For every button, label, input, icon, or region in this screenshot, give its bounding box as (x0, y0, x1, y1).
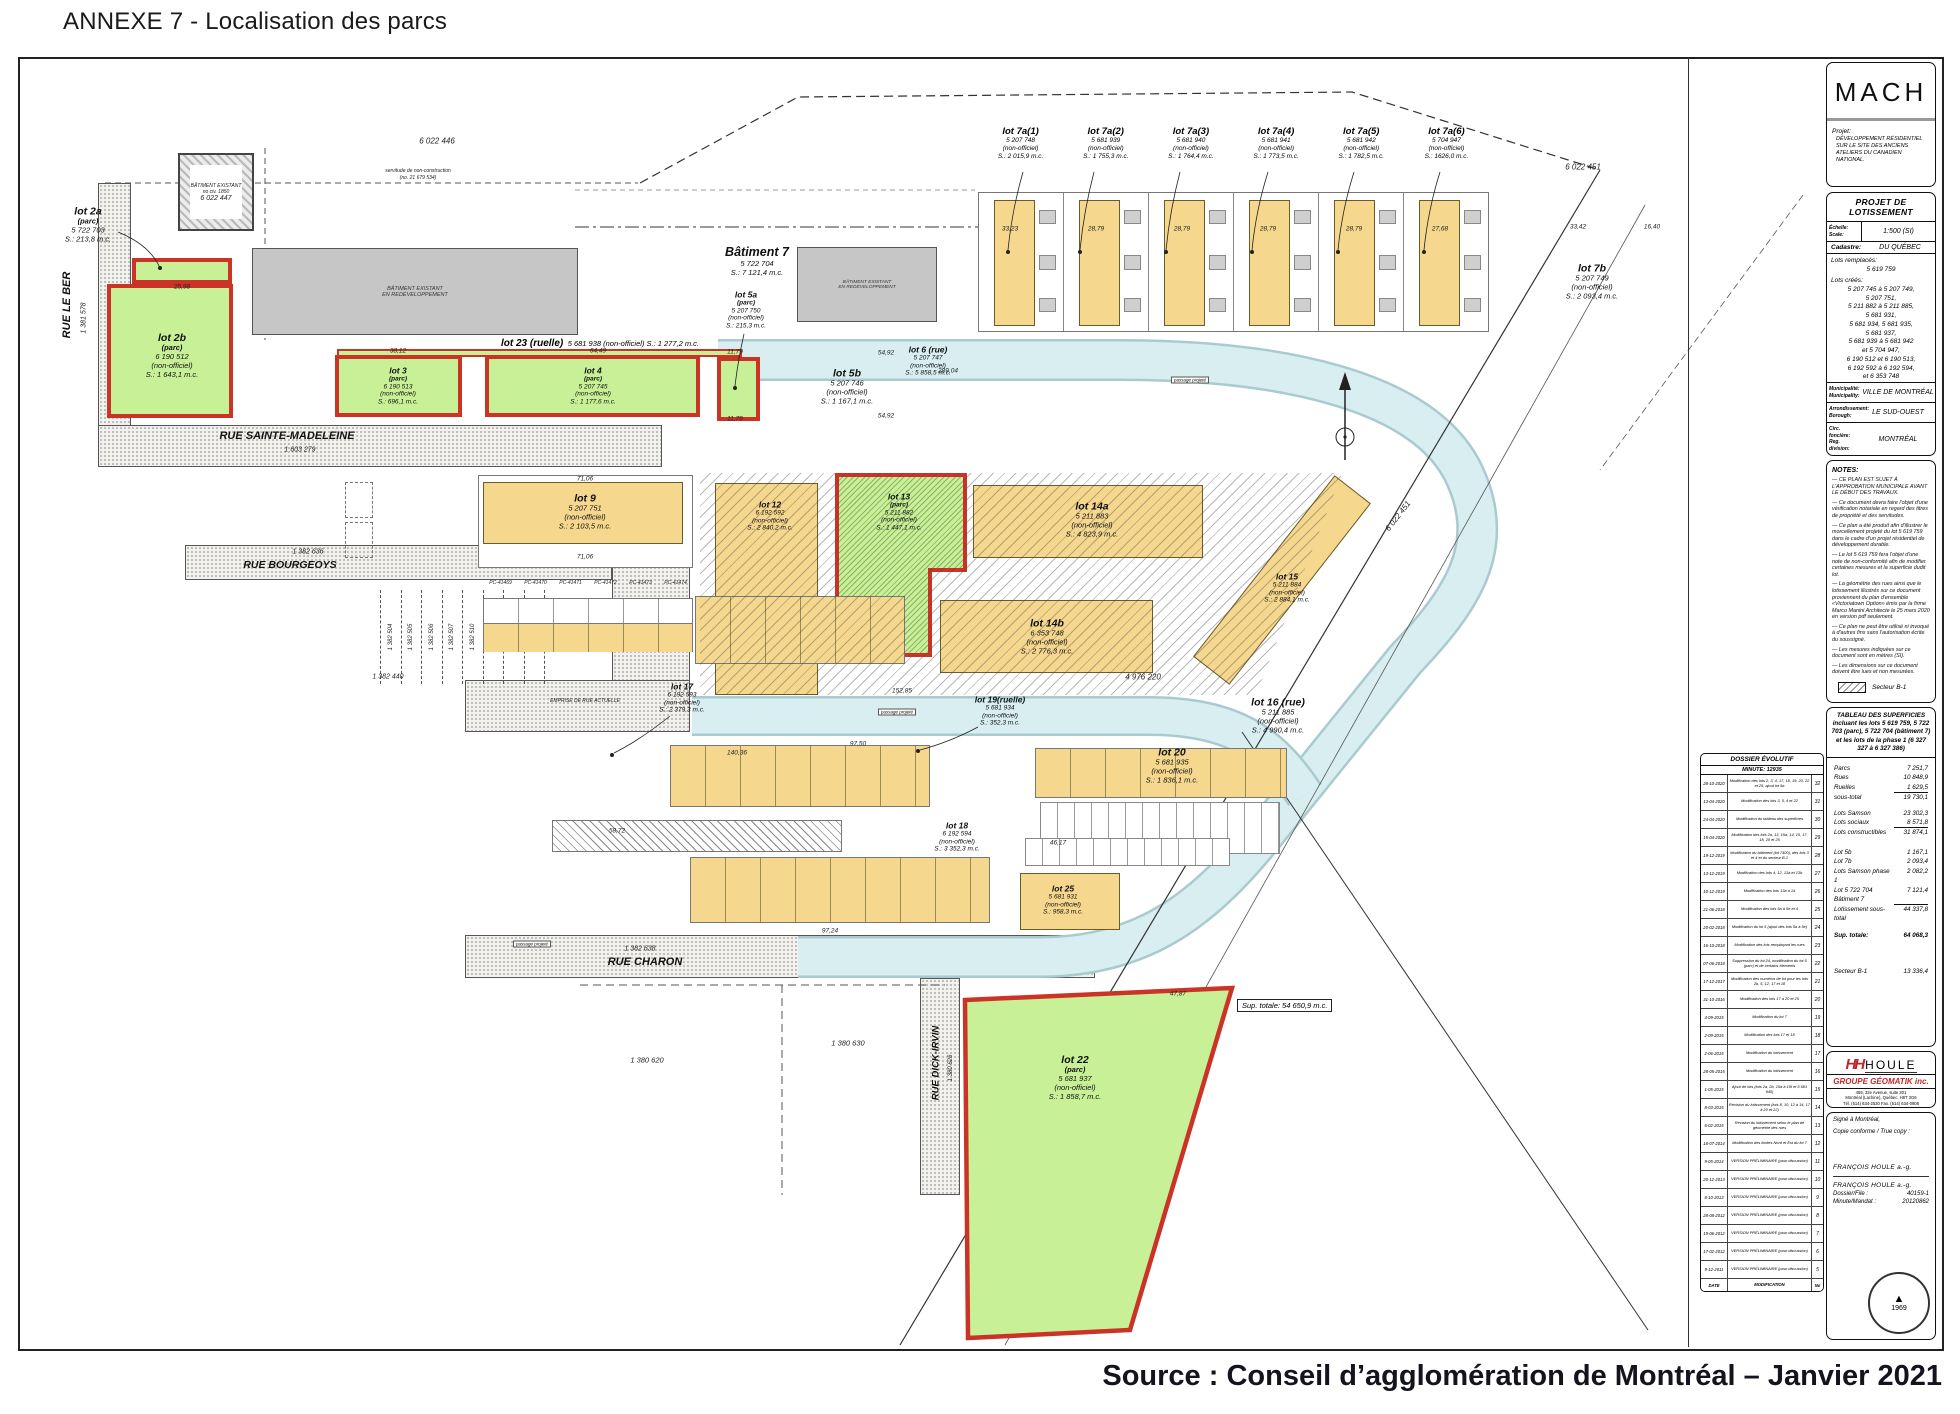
projet-label: Projet: (1832, 128, 1930, 135)
dim-label: 47,87 (1170, 991, 1186, 998)
passage-projete-1: passage projeté (1171, 377, 1209, 384)
cadastre-dick-irvin: 1 380 626 (948, 1055, 954, 1082)
lot-label-2b: lot 2b(parc) 6 190 512(non-officiel)S.: … (146, 332, 199, 380)
superficies-row: Lot 7b2 093,4 (1834, 857, 1928, 866)
dossier-row: 19-12-2019 Modification du bâtiment (lot… (1701, 847, 1823, 865)
pc-label: PC-41472 (588, 580, 623, 586)
dossier-row: 24-04-2020 Modification du tableau des s… (1701, 811, 1823, 829)
phase1-rowhouses (483, 598, 693, 652)
dossier-row: 28-05-2015 Modification du lotissement 1… (1701, 1063, 1823, 1081)
lot-label-13: lot 13(parc) 5 211 882(non-officiel)S.: … (876, 492, 922, 533)
strip-lot: 1 382 506 (421, 590, 442, 684)
dossier-row: 16-10-2018 Modification des lots remplaç… (1701, 937, 1823, 955)
cadastre-6022447: 6 022 447 (200, 195, 231, 202)
cadastre-bourgeoys: 1 382 636 (292, 549, 323, 556)
existing-building-1: BÂTIMENT EXISTANTEN REDÉVELOPPEMENT (252, 248, 578, 335)
note-item: — La géométrie des rues ainsi que le lot… (1832, 581, 1930, 621)
dim-label: 97,24 (822, 928, 838, 935)
existing-building-1850: BÂTIMENT EXISTANT no civ. 1850 6 022 447 (178, 153, 254, 231)
superficies-row: Rues10 848,9 (1834, 773, 1928, 782)
houle-logo: HH HOULE (1827, 1052, 1935, 1075)
cadastre-le-ber: 1 381 578 (81, 302, 88, 333)
lot-label-7a6: lot 7a(6)5 704 947(non-officiel)S.: 1626… (1404, 126, 1489, 161)
dim-label: 11,79 (727, 416, 743, 423)
mach-logo: MACH (1827, 63, 1935, 121)
dossier-row: 20-02-2018 Modification du lot 5 (ajout … (1701, 919, 1823, 937)
lot-label-12: lot 126 192 592 (non-officiel)S.: 2 840,… (747, 500, 793, 533)
arrondissement-value: LE SUD-OUEST (1861, 409, 1935, 416)
dim-label: 28,79 (1260, 226, 1276, 233)
dossier-row: 1-05-2015 Ajout de lots (lots 2a, 2b, 15… (1701, 1081, 1823, 1099)
signature-name-1: FRANÇOIS HOULE a.-g. (1827, 1163, 1935, 1172)
street-lot17-corridor-2 (465, 680, 690, 732)
dossier-title: DOSSIER ÉVOLUTIF (1701, 754, 1823, 766)
circonscription-value: MONTRÉAL (1861, 436, 1935, 443)
superficie-totale-box: Sup. totale: 54 650,9 m.c. (1237, 999, 1332, 1012)
dim-label: 27,68 (1432, 226, 1448, 233)
servitude-label-2: (no. 21 679 534) (400, 175, 437, 181)
lot-label-2a: lot 2a(parc) 5 722 703S.: 213,8 m.c. (65, 206, 111, 245)
passage-projete-2: passage projeté (878, 709, 916, 716)
cadastre-charon: 1 382 638 (624, 946, 655, 953)
cadastre-value: DU QUÉBEC (1865, 244, 1935, 251)
dossier-row: 2-09-2015 Modification des lots 17 et 18… (1701, 1027, 1823, 1045)
dim-label: 152,85 (892, 688, 912, 695)
dim-label: 58,72 (609, 828, 625, 835)
note-item: — CE PLAN EST SUJET À L'APPROBATION MUNI… (1832, 477, 1930, 497)
dossier-row: 2-06-2015 Modification du lotissement 17 (1701, 1045, 1823, 1063)
dim-label: 46,17 (1050, 840, 1066, 847)
panel-superficies: TABLEAU DES SUPERFICIES incluant les lot… (1826, 707, 1936, 1047)
dossier-row: 8-10-2013 VERSION PRÉLIMINAIRE (pour dis… (1701, 1189, 1823, 1207)
lot7a-labels: lot 7a(1)5 207 748(non-officiel)S.: 2 01… (978, 126, 1489, 161)
street-label-dick-irvin: RUE DICK-IRVIN (931, 1026, 942, 1100)
titleblock-divider (1688, 57, 1689, 1347)
dim-label: 71,06 (577, 554, 593, 561)
dossier-row: 9-05-2014 VERSION PRÉLIMINAIRE (pour dis… (1701, 1153, 1823, 1171)
dossier-row: 31-10-2016 Modification des lots 17 à 20… (1701, 991, 1823, 1009)
pc-label: PC-41470 (518, 580, 553, 586)
dossier-row: 17-12-2017 Modification des numéros de l… (1701, 973, 1823, 991)
panel-houle: HH HOULE GROUPE GÉOMATIK inc. 455, 32e A… (1826, 1051, 1936, 1108)
lot-label-25: lot 255 681 931 (non-officiel)S.: 958,3 … (1043, 884, 1083, 917)
superficies-row: Lot 5 722 704 Bâtiment 77 121,4 (1834, 886, 1928, 905)
rowhouses-3 (690, 857, 990, 923)
lot-label-22: lot 22(parc) 5 681 937(non-officiel)S.: … (1049, 1054, 1102, 1102)
annex-page: ANNEXE 7 - Localisation des parcs 1 382 … (0, 0, 1960, 1414)
lot-label-14a: lot 14a5 211 883 (non-officiel)S.: 4 823… (1066, 501, 1119, 540)
dossier-rows: 28-10-2020 Modification des lots 2, 3, 4… (1701, 775, 1823, 1279)
dossier-row: 6-02-2015 Révision du lotissement selon … (1701, 1117, 1823, 1135)
cadastre-1380620: 1 380 620 (630, 1056, 663, 1065)
lot-label-14b: lot 14b6 353 748 (non-officiel)S.: 2 776… (1021, 618, 1074, 657)
note-item: — Le lot 5 619 759 fera l'objet d'une no… (1832, 552, 1930, 578)
superficies-row: Secteur B-113 336,4 (1834, 967, 1928, 976)
superficies-row: Parcs7 251,7 (1834, 764, 1928, 773)
panel-lotissement: PROJET DE LOTISSEMENT Échelle:Scale: 1:5… (1826, 192, 1936, 456)
cadastre-4976220: 4 976 220 (1125, 673, 1161, 682)
pc-label: PC-41473 (623, 580, 658, 586)
lots-remplaces: 5 619 759 (1827, 266, 1935, 275)
note-item: — Les mesures indiquées sur ce document … (1832, 647, 1930, 660)
dim-label: 54,92 (878, 350, 894, 357)
scale-value: 1:500 (SI) (1862, 228, 1935, 235)
dossier-footer: DATE MODIFICATION No (1701, 1279, 1823, 1291)
dossier-row: 28-08-2012 VERSION PRÉLIMINAIRE (pour di… (1701, 1207, 1823, 1225)
small-lot-box (345, 482, 373, 518)
superficies-row: Ruelles1 629,5 (1834, 783, 1928, 793)
lot-label-batiment7: Bâtiment 75 722 704S.: 7 121,4 m.c. (725, 245, 789, 277)
lots-crees: 5 207 745 à 5 207 749,5 207 751,5 211 88… (1827, 286, 1935, 382)
lotissement-title: PROJET DE LOTISSEMENT (1827, 193, 1935, 222)
panel-notes: NOTES: — CE PLAN EST SUJET À L'APPROBATI… (1826, 460, 1936, 703)
strip-lot: 1 382 504 (380, 590, 401, 684)
superficies-row: Lots sociaux8 571,8 (1834, 818, 1928, 828)
existing-building-2: BÂTIMENT EXISTANTEN REDÉVELOPPEMENT (797, 247, 937, 322)
street-sainte-madeleine (98, 425, 662, 467)
superficies-row: sous-total19 730,1 (1834, 793, 1928, 802)
superficies-row: Lots constructibles31 874,1 (1834, 828, 1928, 837)
dossier-row: 15-04-2020 Modification des lots 2a, 13,… (1701, 829, 1823, 847)
dossier-row: 9-12-2011 VERSION PRÉLIMINAIRE (pour dis… (1701, 1261, 1823, 1279)
pc-label: PC-41469 (483, 580, 518, 586)
cadastre-1382440: 1 382 440 (372, 674, 403, 681)
lot-label-5b: lot 5b5 207 746 (non-officiel)S.: 1 167,… (821, 368, 874, 407)
dim-label: 11,79 (727, 349, 743, 356)
panel-logo: MACH Projet: DÉVELOPPEMENT RÉSIDENTIEL S… (1826, 62, 1936, 187)
rowhouses-1 (695, 596, 905, 664)
dim-label: 54,92 (878, 413, 894, 420)
street-label-bourgeoys: RUE BOURGEOYS (243, 559, 336, 571)
page-title: ANNEXE 7 - Localisation des parcs (63, 8, 447, 36)
lot-label-16: lot 16 (rue)5 211 885 (non-officiel)S.: … (1251, 697, 1305, 736)
parc-lot2a (132, 258, 232, 284)
dossier-minute: MINUTE: 12935 (1701, 766, 1823, 775)
dossier-row: 21-06-2018 Modification des lots 5a à 5e… (1701, 901, 1823, 919)
dim-label: 28,79 (1346, 226, 1362, 233)
dossier-row: 13-12-2019 Modification des lots 4, 12, … (1701, 865, 1823, 883)
lot-label-19: lot 19(ruelle)5 681 934 (non-officiel)S.… (975, 695, 1026, 728)
lot-label-20: lot 205 681 935 (non-officiel)S.: 1 836,… (1146, 747, 1199, 786)
dim-label: 71,06 (577, 476, 593, 483)
dim-label: 140,36 (727, 750, 747, 757)
strip-lot: 1 382 510 (462, 590, 483, 684)
geomatik-name: GROUPE GÉOMATIK inc. (1827, 1075, 1935, 1089)
servitude-label-1: servitude de non-construction (385, 168, 451, 174)
street-label-charon: RUE CHARON (608, 956, 683, 968)
lot-label-7b: lot 7b5 207 749 (non-officiel)S.: 2 093,… (1566, 263, 1619, 302)
source-caption: Source : Conseil d’agglomération de Mont… (1102, 1360, 1942, 1393)
pc-label: PC-41471 (553, 580, 588, 586)
note-item: — Ce plan a été produit afin d'illustrer… (1832, 523, 1930, 549)
strip-lot: 1 382 507 (442, 590, 463, 684)
dossier-row: 8-03-2015 Révision du lotissement (lots … (1701, 1099, 1823, 1117)
dim-label: 38,12 (390, 348, 406, 355)
dossier-row: 13-04-2020 Modification des lots 3, 5, 4… (1701, 793, 1823, 811)
lot-label-4: lot 4(parc) 5 207 745(non-officiel)S.: 1… (570, 366, 616, 407)
dim-label: 25,98 (174, 284, 190, 291)
lot-label-3: lot 3(parc) 6 190 513(non-officiel)S.: 6… (378, 366, 418, 407)
cadastre-sainte-madeleine: 1 603 279 (284, 447, 315, 454)
strip-lot: 1 382 505 (401, 590, 422, 684)
dim-label: 28,79 (1088, 226, 1104, 233)
lot-label-7a1: lot 7a(1)5 207 748(non-officiel)S.: 2 01… (978, 126, 1063, 161)
street-label-le-ber: RUE LE BER (61, 272, 73, 339)
street-label-sainte-madeleine: RUE SAINTE-MADELEINE (219, 430, 354, 442)
cadastre-6022451-top: 6 022 451 (1565, 163, 1601, 172)
dossier-number: 40159-1 (1907, 1191, 1929, 1197)
dossier-row: 19-06-2012 VERSION PRÉLIMINAIRE (pour di… (1701, 1225, 1823, 1243)
lot-label-7a4: lot 7a(4)5 681 941(non-officiel)S.: 1 77… (1234, 126, 1319, 161)
cadastre-1380630: 1 380 630 (831, 1039, 864, 1048)
secteur-b1-legend: Secteur B-1 (1838, 682, 1930, 693)
dossier-row: 20-12-2013 VERSION PRÉLIMINAIRE (pour di… (1701, 1171, 1823, 1189)
surveyor-seal: ▲ 1969 (1868, 1272, 1930, 1334)
lot-label-18: lot 186 192 594 (non-officiel)S.: 3 352,… (934, 821, 980, 854)
signature-name-2: FRANÇOIS HOULE a.-g. (1827, 1181, 1935, 1190)
dossier-row: 17-02-2012 VERSION PRÉLIMINAIRE (pour di… (1701, 1243, 1823, 1261)
notes-list: — CE PLAN EST SUJET À L'APPROBATION MUNI… (1832, 477, 1930, 676)
lot-label-15: lot 155 211 884 (non-officiel)S.: 2 884,… (1264, 572, 1310, 605)
lot-label-7a5: lot 7a(5)5 681 942(non-officiel)S.: 1 78… (1319, 126, 1404, 161)
note-item: — Ce document devra faire l'objet d'une … (1832, 500, 1930, 520)
lot-label-7a3: lot 7a(3)5 681 940(non-officiel)S.: 1 76… (1148, 126, 1233, 161)
superficies-title: TABLEAU DES SUPERFICIES incluant les lot… (1827, 708, 1935, 758)
hatch-swatch (1838, 682, 1866, 693)
superficies-table: Parcs7 251,7Rues10 848,9Ruelles1 629,5so… (1827, 758, 1935, 978)
lot7a-townhouse-row (978, 192, 1489, 332)
dim-label: 33,23 (1002, 226, 1018, 233)
dim-label: 33,42 (1570, 224, 1586, 231)
lot-label-5a: lot 5a(parc) 5 207 750(non-officiel)S.: … (726, 290, 766, 331)
mandate-number: 20120862 (1902, 1199, 1929, 1205)
superficies-row: Lots Samson phase 12 082,2 (1834, 867, 1928, 886)
rowhouses-2 (670, 745, 930, 807)
pc-label: PC-41474 (658, 580, 693, 586)
lot-label-9: lot 95 207 751 (non-officiel)S.: 2 103,5… (559, 493, 612, 532)
houle-address: 455, 32e Avenue, suite 201Montréal (Lach… (1827, 1089, 1935, 1108)
small-lot-box (345, 522, 373, 558)
dossier-row: 4-09-2015 Modification du lot 7 19 (1701, 1009, 1823, 1027)
municipalite-value: VILLE DE MONTRÉAL (1861, 389, 1935, 396)
lot-label-7a2: lot 7a(2)5 681 939(non-officiel)S.: 1 75… (1063, 126, 1148, 161)
superficies-row: Sup. totale:64 068,3 (1834, 931, 1928, 940)
dossier-row: 28-10-2020 Modification des lots 2, 3, 4… (1701, 775, 1823, 793)
superficies-row: Lot 5b1 167,1 (1834, 848, 1928, 857)
superficies-row: Lotissement sous-total44 337,8 (1834, 905, 1928, 924)
parc-lot5a (717, 357, 760, 421)
notes-title: NOTES: (1832, 467, 1930, 474)
dim-label: 289,04 (938, 368, 958, 375)
dim-label: 64,49 (590, 348, 606, 355)
note-item: — Ce plan ne peut être utilisé ni invoqu… (1832, 624, 1930, 644)
lot-label-17: lot 176 192 593 (non-officiel)S.: 2 379,… (659, 682, 705, 715)
panel-signature: Signé à Montréal, Copie conforme / True … (1826, 1112, 1936, 1340)
dossier-row: 07-06-2018 Suppression du lot 24, modifi… (1701, 955, 1823, 973)
dossier-evolutif-table: DOSSIER ÉVOLUTIF MINUTE: 12935 28-10-202… (1700, 753, 1824, 1292)
passage-projete-3: passage projeté (513, 941, 551, 948)
dim-label: 28,79 (1174, 226, 1190, 233)
street-charon (465, 935, 1095, 978)
note-item: — Les dimensions sur ce document doivent… (1832, 663, 1930, 676)
parking-zigzag (552, 820, 842, 852)
dim-label: 16,40 (1644, 224, 1660, 231)
dim-label: 97,50 (850, 741, 866, 748)
cadastre-6022446: 6 022 446 (419, 137, 455, 146)
pc-condo-labels: PC-41469PC-41470PC-41471PC-41472PC-41473… (483, 580, 693, 586)
dossier-row: 10-12-2019 Modification des lots 13a à 1… (1701, 883, 1823, 901)
emprise-label: EMPRISE DE RUE ACTUELLE (550, 698, 620, 704)
dossier-row: 18-07-2014 Modification des limites Nord… (1701, 1135, 1823, 1153)
superficies-row: Lots Samson23 302,3 (1834, 809, 1928, 818)
projet-text: DÉVELOPPEMENT RÉSIDENTIEL SUR LE SITE DE… (1832, 136, 1930, 164)
